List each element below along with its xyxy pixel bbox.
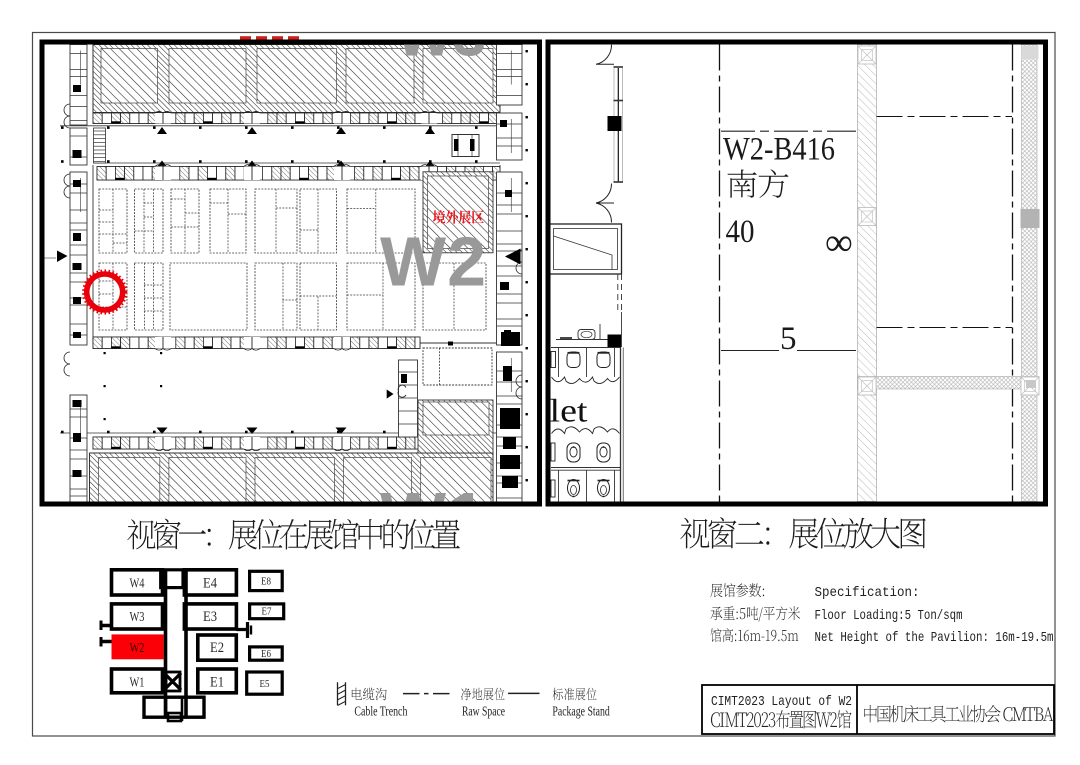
svg-text:Cable Trench: Cable Trench	[354, 703, 407, 718]
svg-text:W2: W2	[130, 641, 145, 656]
svg-text:Floor Loading:5 Ton/sqm: Floor Loading:5 Ton/sqm	[815, 608, 963, 624]
svg-text:E4: E4	[203, 576, 217, 592]
svg-text:Package Stand: Package Stand	[552, 703, 609, 718]
svg-text:40: 40	[726, 214, 755, 250]
svg-text:W4: W4	[130, 577, 145, 592]
svg-text:E7: E7	[262, 607, 272, 618]
svg-text:5: 5	[780, 321, 797, 357]
svg-text:W2: W2	[380, 223, 487, 301]
svg-text:Specification:: Specification:	[815, 585, 920, 601]
svg-text:E2: E2	[210, 640, 224, 656]
svg-text:E8: E8	[261, 577, 271, 588]
svg-text:CIMT2023 Layout of W2: CIMT2023 Layout of W2	[711, 694, 852, 710]
svg-text:E1: E1	[210, 675, 224, 691]
svg-text:∞: ∞	[825, 221, 853, 264]
svg-text:E5: E5	[260, 679, 270, 690]
svg-text:Net Height of the Pavilion: 16: Net Height of the Pavilion: 16m-19.5m	[815, 630, 1054, 646]
svg-text:Raw Space: Raw Space	[462, 703, 505, 718]
svg-text:W3: W3	[130, 610, 145, 625]
svg-text:W2-B416: W2-B416	[723, 132, 835, 168]
svg-text:let: let	[550, 394, 588, 430]
svg-text:W1: W1	[130, 676, 145, 691]
svg-text:E6: E6	[261, 649, 271, 660]
svg-text:E3: E3	[203, 609, 217, 625]
